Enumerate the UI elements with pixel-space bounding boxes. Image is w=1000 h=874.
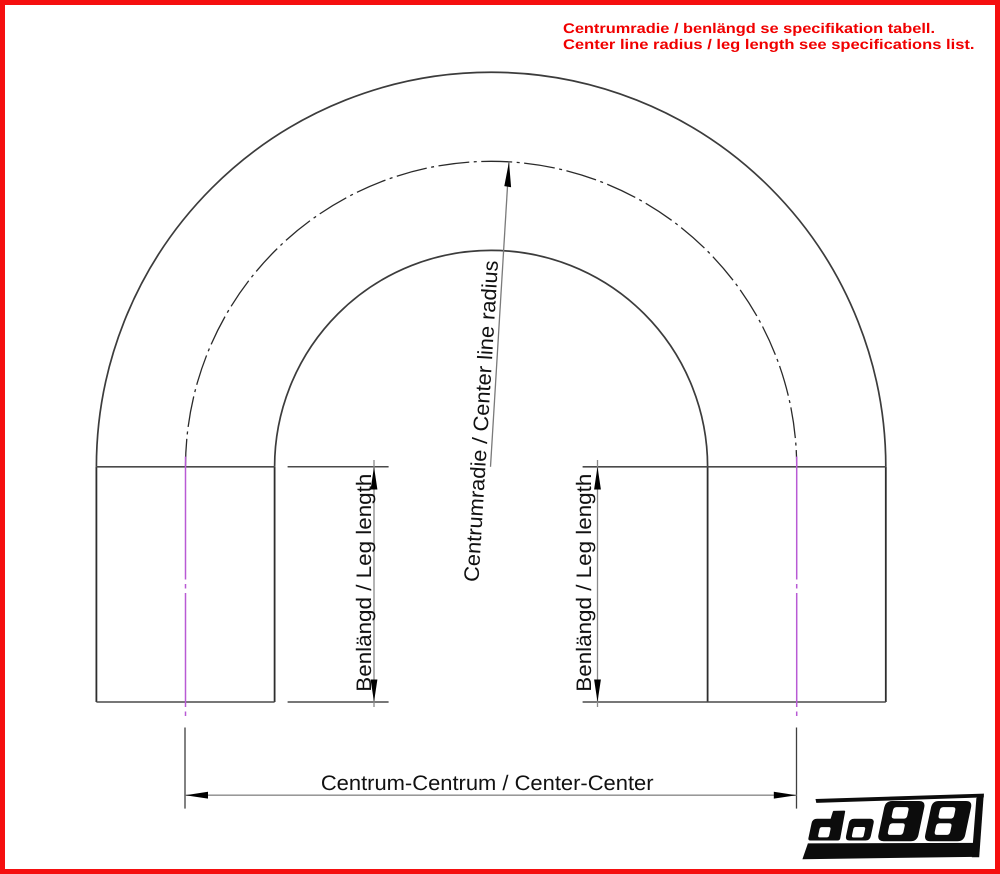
svg-text:Center line radius / leg lengt: Center line radius / leg length see spec… [563,36,975,52]
svg-text:Centrumradie / benlängd se spe: Centrumradie / benlängd se specifikation… [563,20,935,36]
svg-text:Benlängd / Leg length: Benlängd / Leg length [573,474,596,692]
svg-text:Centrum-Centrum / Center-Cente: Centrum-Centrum / Center-Center [321,772,654,795]
svg-text:Benlängd / Leg length: Benlängd / Leg length [353,474,376,692]
